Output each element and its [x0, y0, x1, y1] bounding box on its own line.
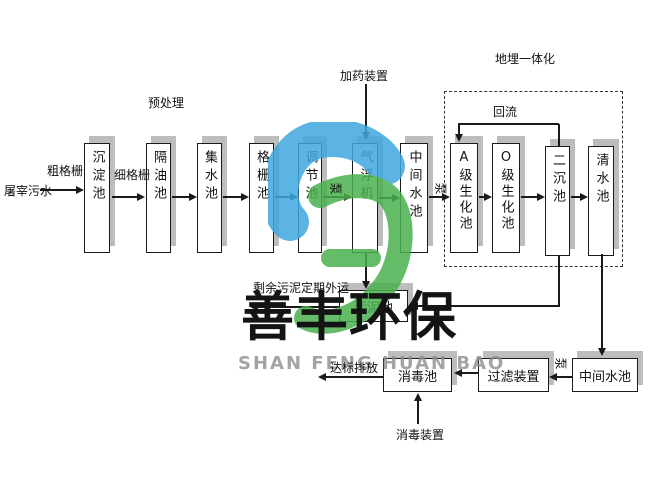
process-flow-diagram: 屠宰污水 粗格栅 细格栅 预处理 加药装置 地埋一体化 回流 剩余污泥定期外运 …	[0, 0, 650, 500]
fine-screen-label: 细格栅	[114, 166, 150, 183]
clean-to-intermediate-line	[601, 254, 603, 350]
reflux-label: 回流	[493, 103, 517, 120]
tank-intermediate-bottom: 中间水池	[572, 358, 638, 392]
tank-water-collection: 集水池	[197, 143, 222, 253]
tank-sedimentation: 沉淀池	[84, 143, 110, 253]
flow-arrowhead	[241, 193, 249, 201]
buried-integration-container	[444, 91, 623, 267]
discharge-line	[324, 376, 383, 378]
flow-line	[112, 196, 138, 198]
pump-label-3: 泵	[553, 357, 570, 369]
reflux-line	[558, 124, 560, 146]
reflux-arrowhead	[455, 134, 463, 142]
disinfect-device-label: 消毒装置	[396, 426, 444, 443]
intermediate-to-filter-arrowhead	[549, 373, 557, 381]
disinfect-device-arrowhead	[414, 393, 422, 401]
flow-arrowhead	[580, 193, 588, 201]
discharge-label: 达标排放	[330, 359, 378, 376]
flow-line	[223, 196, 242, 198]
flow-arrowhead	[484, 193, 492, 201]
flow-arrowhead	[76, 186, 84, 194]
reflux-line	[458, 123, 559, 125]
flow-line	[172, 196, 190, 198]
tank-oil-separation: 隔油池	[146, 143, 171, 253]
discharge-arrowhead	[318, 373, 326, 381]
flow-line	[429, 196, 443, 198]
buried-integration-label: 地埋一体化	[495, 50, 555, 67]
pretreatment-label: 预处理	[148, 94, 184, 111]
pump-label-2: 泵	[433, 182, 450, 194]
flow-arrowhead	[189, 193, 197, 201]
coarse-screen-label: 粗格栅	[47, 162, 83, 179]
pump-label-1: 泵	[328, 182, 345, 194]
sludge-return-line	[558, 255, 560, 307]
source-label: 屠宰污水	[4, 182, 52, 199]
flow-arrowhead	[137, 193, 145, 201]
disinfect-device-line	[417, 400, 419, 424]
dosing-device-label: 加药装置	[340, 67, 388, 84]
flow-arrowhead	[537, 193, 545, 201]
watermark-company-name-cn: 善丰环保	[241, 289, 457, 347]
clean-to-intermediate-arrowhead	[598, 348, 606, 356]
intermediate-to-filter-line	[555, 376, 572, 378]
